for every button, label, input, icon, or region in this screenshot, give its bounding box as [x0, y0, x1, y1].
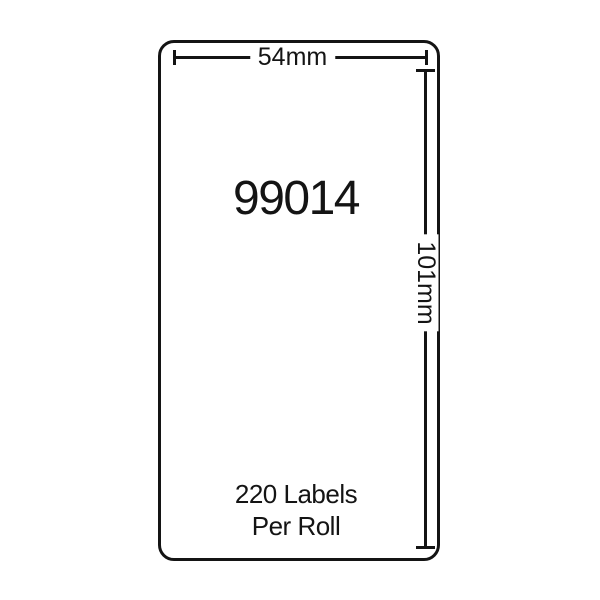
width-dimension-label: 54mm [250, 45, 335, 70]
width-dimension: 54mm [173, 50, 428, 65]
label-spec-diagram: 54mm 101mm 99014 220 Labels Per Roll [0, 0, 600, 600]
product-code: 99014 [233, 175, 359, 223]
height-dimension: 101mm [416, 69, 435, 549]
height-dimension-cap-bottom [416, 546, 435, 549]
roll-info-line1: 220 Labels [235, 478, 357, 510]
height-dimension-label: 101mm [413, 234, 438, 331]
width-dimension-cap-right [425, 50, 428, 65]
roll-info-line2: Per Roll [235, 510, 357, 542]
roll-info: 220 Labels Per Roll [235, 478, 357, 542]
